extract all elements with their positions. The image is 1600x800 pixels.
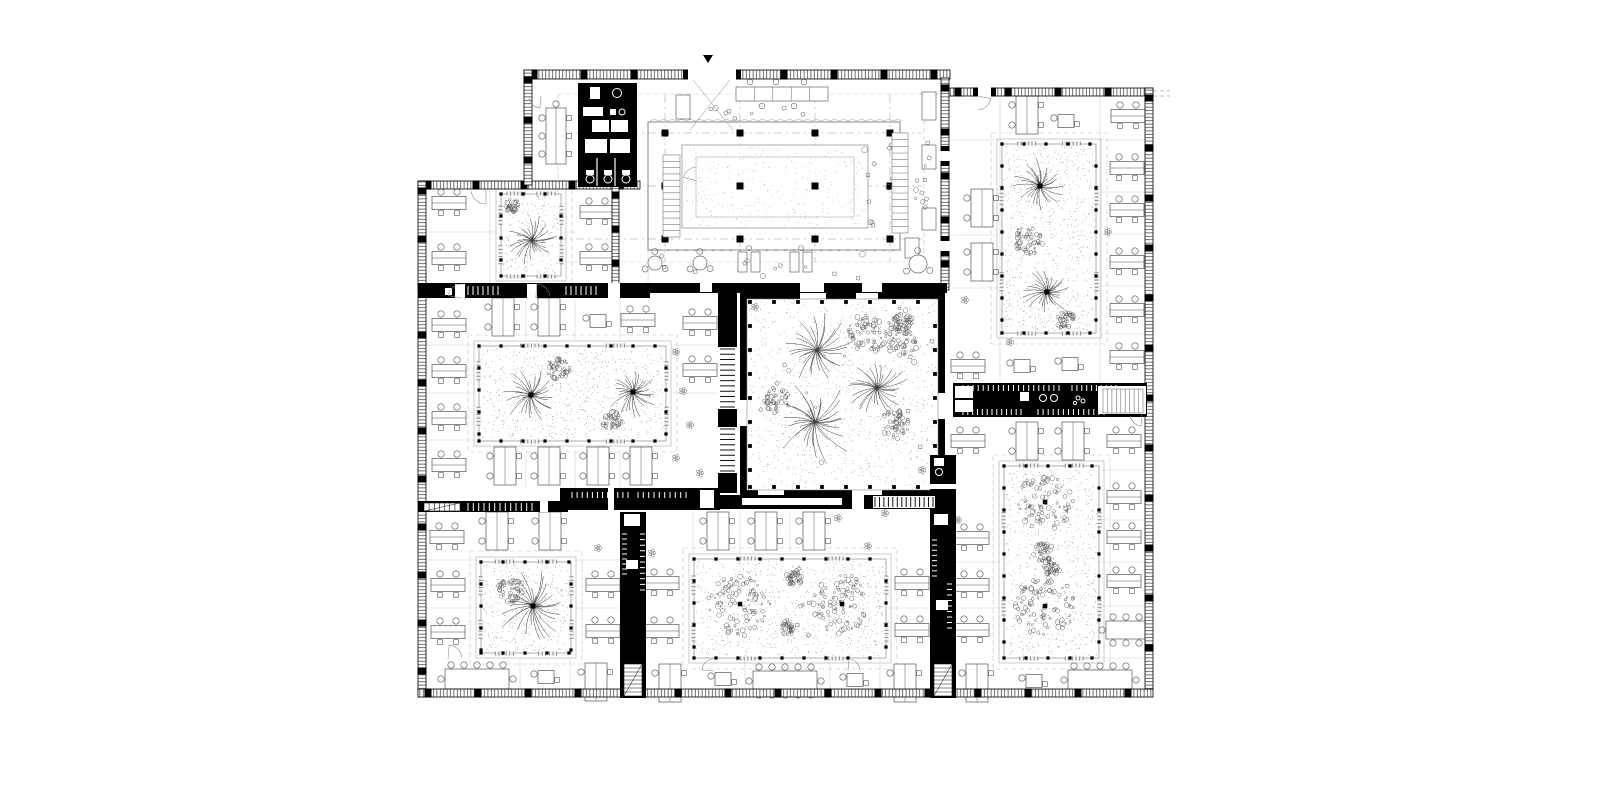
desk	[621, 306, 655, 333]
desk	[432, 189, 466, 216]
desk	[431, 571, 465, 598]
desk	[1055, 422, 1090, 460]
stair	[934, 664, 952, 696]
courtyard	[689, 554, 891, 663]
plant	[697, 469, 704, 477]
column	[887, 236, 894, 243]
desk	[432, 311, 466, 338]
desk	[700, 512, 735, 550]
desk	[485, 298, 520, 336]
desk	[1110, 296, 1144, 323]
desk	[479, 512, 514, 550]
buffet-table	[736, 79, 828, 109]
desk	[432, 451, 466, 478]
desk	[1009, 96, 1044, 134]
wall-segment	[418, 689, 1153, 698]
wall-segment	[418, 181, 427, 697]
desk	[895, 616, 929, 643]
plant	[649, 549, 656, 557]
tree-palm	[786, 313, 853, 378]
column	[737, 183, 744, 190]
central-courtyard	[740, 292, 945, 497]
desk	[796, 512, 831, 550]
desk	[586, 617, 620, 644]
desk	[895, 569, 929, 596]
desk	[586, 571, 620, 598]
column	[737, 236, 744, 243]
stair	[663, 155, 680, 237]
desk	[1110, 196, 1144, 223]
desk	[1110, 343, 1144, 370]
desk	[430, 523, 464, 550]
courtyard	[496, 189, 566, 281]
column	[812, 236, 819, 243]
wall-segment	[524, 70, 533, 185]
desk	[683, 356, 717, 383]
desk	[1051, 115, 1080, 128]
stair	[1103, 389, 1143, 413]
plant	[1007, 338, 1014, 346]
side-table	[922, 208, 936, 230]
tree-bush	[763, 386, 790, 414]
tree-bush	[847, 314, 887, 353]
desk	[708, 673, 737, 686]
tree-bush	[882, 409, 910, 441]
plant	[673, 348, 680, 356]
stair	[424, 503, 460, 511]
desk	[539, 101, 572, 164]
wall-segment	[940, 78, 950, 290]
desk	[951, 352, 985, 379]
desk	[432, 357, 466, 384]
desk	[1110, 154, 1144, 181]
desk	[531, 671, 560, 684]
wall-segment	[948, 87, 1153, 97]
courtyard	[999, 461, 1104, 663]
desk	[580, 244, 614, 271]
plant	[962, 296, 969, 304]
column	[737, 130, 744, 137]
wall-segment	[524, 69, 950, 80]
floor-plan-stage: Office building floor plan — courtyards,…	[0, 0, 1600, 800]
lounge-chairs	[790, 246, 812, 273]
desk	[951, 427, 985, 454]
lounge-chairs	[738, 246, 760, 273]
desk	[583, 315, 612, 328]
desk	[1107, 567, 1141, 594]
stair	[624, 664, 642, 696]
tree-bush	[888, 307, 914, 333]
desk	[531, 447, 566, 485]
door-swing-arc	[977, 96, 991, 110]
desk	[964, 243, 999, 281]
desk	[1107, 523, 1141, 550]
column	[662, 130, 669, 137]
door-swing-arc	[471, 189, 486, 204]
side-table	[922, 92, 936, 120]
desk	[431, 618, 465, 645]
column	[812, 183, 819, 190]
desk	[955, 616, 989, 643]
desk	[748, 512, 783, 550]
desk	[955, 571, 989, 598]
column	[812, 130, 819, 137]
tree-palm	[849, 364, 908, 414]
side-table	[676, 95, 690, 119]
courtyard	[997, 139, 1101, 338]
plant	[680, 387, 687, 395]
desk	[580, 198, 614, 225]
desk	[580, 447, 615, 485]
plant	[752, 303, 759, 311]
plant	[687, 421, 694, 429]
desk	[1110, 248, 1144, 275]
courtyard	[474, 341, 671, 446]
desk	[432, 244, 466, 271]
desk	[487, 447, 522, 485]
plant	[1105, 228, 1112, 236]
desk	[645, 617, 679, 644]
desk	[532, 512, 567, 550]
desk	[645, 569, 679, 596]
service-core	[648, 283, 947, 293]
courtyard	[476, 557, 576, 658]
round-table	[642, 249, 668, 272]
desk	[955, 524, 989, 551]
desk	[623, 447, 658, 485]
entrance-marker	[703, 55, 713, 63]
plant	[919, 466, 926, 474]
floor-plan-drawing: Office building floor plan — courtyards,…	[0, 0, 1600, 800]
desk	[683, 309, 717, 336]
plant	[673, 454, 680, 462]
plant	[865, 542, 872, 550]
desk	[1107, 427, 1141, 454]
desk	[964, 189, 999, 227]
round-table	[687, 249, 713, 272]
desk	[840, 674, 869, 687]
desk	[432, 404, 466, 431]
tree-palm	[783, 386, 847, 464]
desk	[1019, 675, 1048, 688]
desk	[1111, 102, 1145, 129]
desk	[531, 298, 566, 336]
desk	[1055, 358, 1084, 371]
plant	[882, 509, 889, 517]
desk	[1107, 483, 1141, 510]
wall-segment	[612, 185, 620, 285]
door-swing-arc	[448, 645, 462, 659]
plant	[595, 544, 602, 552]
plant	[835, 514, 842, 522]
desk	[1007, 360, 1036, 373]
stair	[892, 133, 908, 233]
desk	[1009, 422, 1044, 460]
scatter-objects	[660, 251, 866, 280]
